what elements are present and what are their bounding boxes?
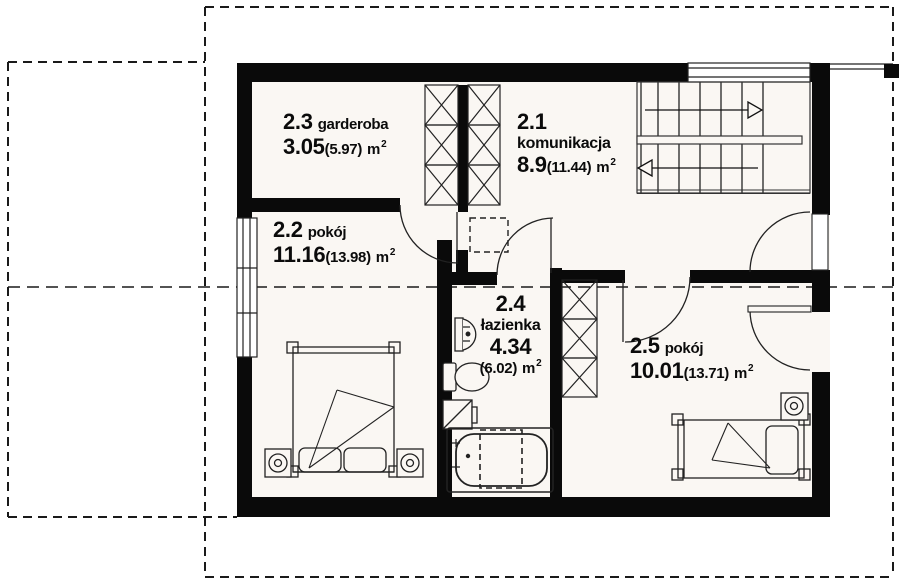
room-number: 2.1: [517, 110, 616, 135]
railing-top-right: [830, 64, 899, 78]
room-area-total: (5.97): [325, 141, 362, 158]
room-area-total: (13.71): [684, 365, 729, 382]
room-area-total: (6.02): [480, 360, 517, 377]
room-name: łazienka: [458, 317, 563, 335]
room-name: pokój: [665, 340, 704, 357]
room-area-total: (13.98): [325, 249, 370, 266]
room-label-2-2: 2.2pokój 11.16(13.98)m2: [273, 218, 395, 267]
room-label-2-3: 2.3garderoba 3.05(5.97)m2: [283, 110, 388, 159]
area-unit: m2: [522, 360, 541, 377]
area-unit: m2: [376, 249, 395, 266]
nightstand-icon: [781, 393, 808, 420]
area-unit: m2: [734, 365, 753, 382]
room-area: 4.34: [458, 335, 563, 360]
room-area: 3.05: [283, 134, 325, 159]
room-area: 11.16: [273, 242, 325, 267]
room-label-2-5: 2.5pokój 10.01(13.71)m2: [630, 334, 753, 383]
room-name: pokój: [308, 224, 347, 241]
floor-plan-drawing: [0, 0, 902, 581]
area-unit: m2: [367, 141, 386, 158]
window-left: [237, 218, 257, 357]
chimney-block: [884, 64, 899, 78]
room-number: 2.4: [458, 292, 563, 317]
room-area-total: (11.44): [547, 159, 592, 176]
floor-plan: 2.3garderoba 3.05(5.97)m2 2.1 komunikacj…: [0, 0, 902, 581]
room-number: 2.2: [273, 217, 303, 242]
room-number: 2.3: [283, 109, 313, 134]
room-area: 10.01: [630, 358, 684, 383]
area-unit: m2: [596, 159, 615, 176]
room-label-2-1: 2.1 komunikacja 8.9(11.44)m2: [517, 110, 616, 177]
room-name: komunikacja: [517, 135, 616, 153]
window-top: [688, 63, 810, 82]
stair-rail: [637, 136, 802, 144]
room-area: 8.9: [517, 152, 547, 177]
room-number: 2.5: [630, 333, 660, 358]
washer-icon: [443, 400, 477, 429]
room-name: garderoba: [318, 116, 389, 133]
room-label-2-4: 2.4 łazienka 4.34 (6.02)m2: [458, 292, 563, 378]
